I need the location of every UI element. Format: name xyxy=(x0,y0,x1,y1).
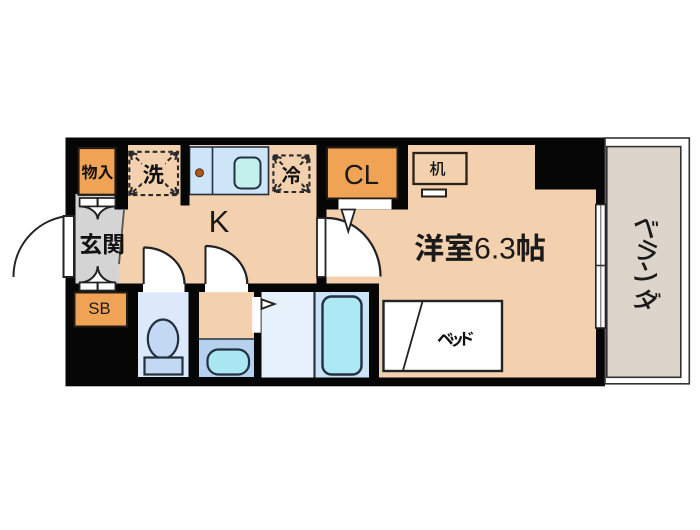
svg-text:6.3: 6.3 xyxy=(474,233,516,266)
svg-text:SB: SB xyxy=(88,299,110,318)
svg-text:K: K xyxy=(209,204,230,239)
svg-text:CL: CL xyxy=(344,159,379,190)
